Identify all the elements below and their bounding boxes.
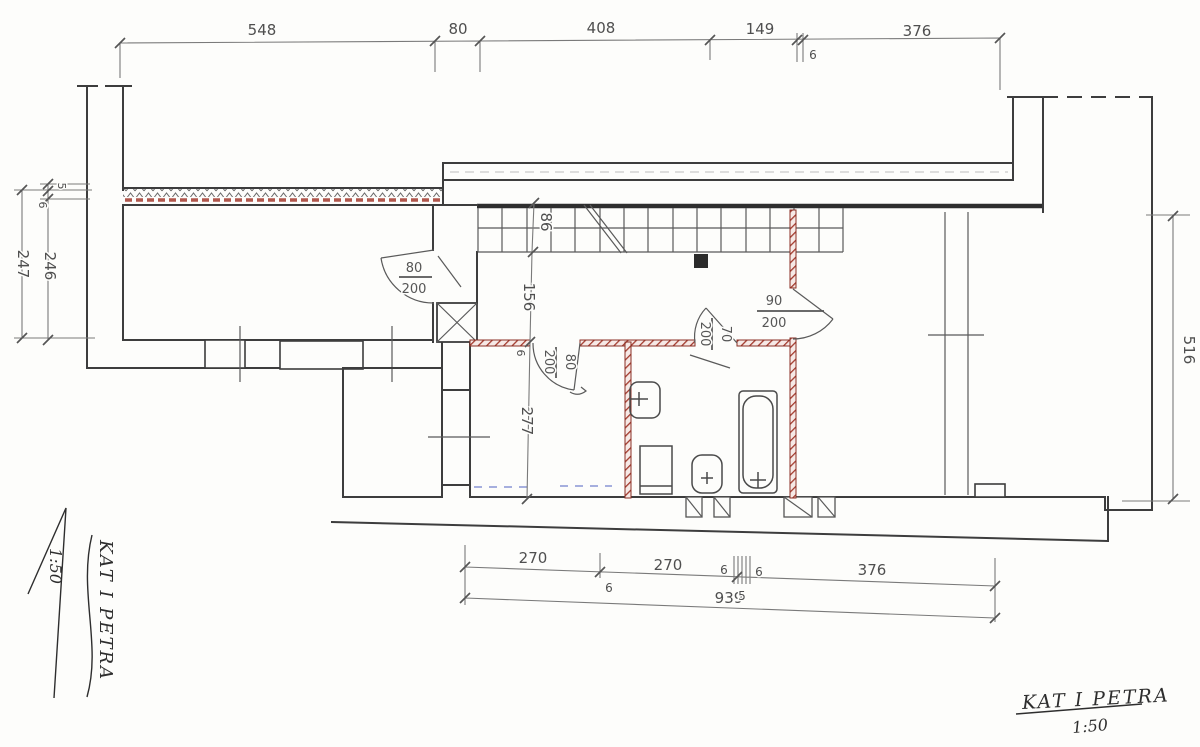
scanned-floor-plan-page: 80 200 80 200 70 200 90 200: [0, 0, 1200, 747]
door-living-height: 200: [762, 316, 787, 331]
corner-note-title: KAT I PETRA: [1021, 684, 1171, 714]
dim-int-156: 156: [520, 283, 538, 312]
dim-bottom-6b: 6: [720, 563, 728, 577]
outer-walls: [78, 86, 1152, 541]
door-hall: 80 200: [533, 343, 586, 394]
red-wall-c: [737, 340, 793, 346]
floor-plan-drawing: 80 200 80 200 70 200 90 200: [0, 0, 1200, 747]
dim-bottom-270b: 270: [654, 556, 683, 574]
handwritten-margin-note: 1:50 KAT I PETRA: [28, 508, 116, 698]
corner-note-scale: 1:50: [1071, 715, 1108, 737]
door-entry-height: 200: [402, 282, 427, 297]
column-filled-square: [694, 254, 708, 268]
blue-pencil-marks: [474, 486, 612, 487]
dimensions-right: 516: [1122, 211, 1198, 504]
dimensions-bottom: 270 270 376 939 6 6 6 5: [460, 545, 1000, 623]
dim-top-6: 6: [809, 48, 817, 62]
door-entry: 80 200: [381, 250, 461, 303]
dim-left-6: 6: [36, 202, 49, 209]
margin-note-title: KAT I PETRA: [95, 539, 116, 681]
red-wall-a: [470, 340, 530, 346]
door-bath: 70 200: [690, 308, 737, 368]
dim-bottom-6c: 6: [755, 565, 763, 579]
red-wall-d: [790, 210, 796, 288]
dim-top-149: 149: [746, 20, 775, 38]
dim-top-376: 376: [903, 22, 932, 40]
door-bath-height: 200: [697, 322, 712, 347]
handwritten-corner-note: KAT I PETRA 1:50: [1016, 684, 1170, 737]
bathtub: [739, 391, 777, 493]
dim-bottom-6a: 6: [605, 581, 613, 595]
shaft-crossed-box: [437, 303, 477, 342]
door-hall-width: 80: [562, 354, 577, 371]
red-wall-b: [580, 340, 695, 346]
wall-corridor-top: [443, 163, 1013, 205]
washing-machine: [640, 446, 672, 494]
red-wall-e: [790, 338, 796, 498]
margin-note-scale: 1:50: [46, 548, 65, 584]
dimensions-left: 247 246 5 6: [14, 179, 95, 345]
door-living-width: 90: [766, 294, 783, 309]
door-bath-width: 70: [718, 326, 733, 343]
dim-int-6: 6: [514, 350, 527, 357]
wall-topright-pier: [1008, 97, 1046, 212]
stair-break-line: [584, 205, 627, 253]
dim-right-516: 516: [1180, 336, 1198, 365]
dim-left-246: 246: [41, 252, 59, 281]
window-box-1: [205, 340, 245, 368]
bottom-wall-vent-boxes: [686, 497, 835, 517]
signature-stroke-2: [87, 535, 92, 697]
door-entry-width: 80: [406, 261, 423, 276]
dim-int-86: 86: [537, 212, 555, 231]
dim-bottom-376: 376: [858, 561, 887, 579]
door-living: 90 200: [757, 289, 833, 339]
red-partition-wc: [625, 342, 631, 498]
wall-notch: [975, 484, 1005, 497]
dim-int-277: 277: [518, 407, 536, 436]
dim-bottom-5: 5: [738, 589, 746, 603]
sink: [630, 382, 660, 418]
window-box-2: [280, 341, 363, 369]
dim-top-80: 80: [448, 20, 467, 38]
bathroom-fixtures: [630, 382, 777, 494]
door-hall-height: 200: [541, 350, 556, 375]
wall-leftroom-bottom: [87, 340, 433, 368]
dimensions-top: 548 80 408 149 376 6: [115, 19, 1005, 90]
dim-left-247: 247: [14, 250, 32, 279]
wall-insulation-hatch: [123, 189, 443, 197]
dim-top-548: 548: [248, 21, 277, 39]
dim-bottom-270a: 270: [519, 549, 548, 567]
toilet: [692, 455, 722, 493]
dim-top-408: 408: [587, 19, 616, 37]
dim-left-5: 5: [55, 183, 68, 190]
right-room-duct-lines: [928, 212, 984, 495]
signature-stroke-1: [28, 508, 66, 698]
